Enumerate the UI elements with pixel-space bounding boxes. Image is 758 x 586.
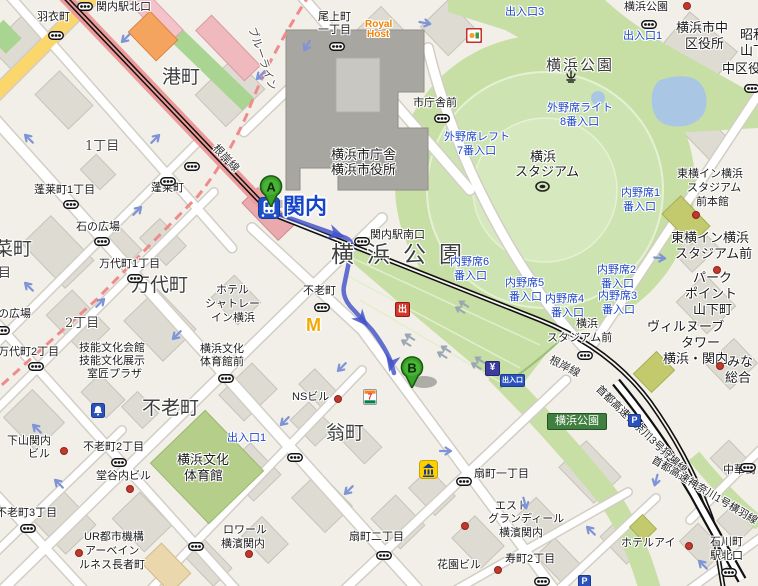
map-label: ヴィルヌーブ [647,320,724,333]
mcdonalds-icon: M [306,316,321,334]
map-label: 寿町2丁目 [505,554,555,565]
map-label: ビル [28,449,50,460]
map-label: 横浜公園 [546,58,614,73]
map-label: 内野席6 [450,257,489,268]
map-label: 中区役 [722,62,758,75]
map-label: 不老町2丁目 [83,442,144,453]
traffic-light-icon [28,358,44,376]
traffic-light-icon [434,110,450,128]
map-label: ホテルアイ [621,538,675,549]
map-label: 区役所 [685,37,724,50]
map-label: 根岸線 [210,143,241,175]
traffic-light-icon [740,459,756,477]
traffic-light-icon [188,538,204,556]
traffic-light-icon [354,233,370,251]
marker-a[interactable]: A [255,165,287,207]
poi-dot[interactable] [334,395,342,403]
fountain-icon [564,70,578,88]
traffic-light-icon [744,80,758,98]
map-label: 内野席1 [621,188,660,199]
oneway-arrow-icon [127,200,151,224]
map-label: パーク [693,271,732,284]
oneway-arrow-icon [580,517,604,541]
map-label: 外野席ライト [547,103,613,114]
map-label: 昭和 [740,28,758,41]
map-label: 石川町 [710,537,743,548]
oneway-arrow-icon [438,444,454,462]
traffic-light-icon [20,520,36,538]
map-label: 不老町 [303,286,336,297]
map-label: 8番入口 [560,117,599,128]
expressway-exit-yokohama-park-badge: 横浜公園 [547,413,607,430]
map-label: 山下町 [693,303,732,316]
map-label: 目 [0,267,11,280]
map-label: 技能文化会館 [79,343,145,354]
oneway-arrow-icon [512,494,534,514]
map-label: 2丁目 [65,317,99,330]
map-label: 不老町3丁目 [0,508,57,519]
map-label: 関内駅南口 [370,230,425,241]
traffic-light-icon [160,173,176,191]
map-label: 花園ビル [437,560,481,571]
lane-arrow-icon [431,335,457,362]
bell-icon [91,403,105,423]
traffic-light-icon [77,0,93,16]
traffic-light-icon [0,322,10,340]
map-label: イン横浜 [211,313,255,324]
map-label: アーベイン [85,546,139,557]
map-label: 不老町 [142,399,199,418]
oneway-arrow-icon [48,470,72,494]
map-label: 万代町2丁目 [0,347,59,358]
map-label: 市庁舎前 [413,98,457,109]
marker-b[interactable]: B [396,346,428,388]
poi-dot[interactable] [716,362,724,370]
map-label: UR都市機構 [84,532,144,543]
traffic-light-icon [534,573,550,586]
map-label: 出入口1 [227,433,266,444]
traffic-light-icon [127,270,143,288]
traffic-light-icon [376,547,392,565]
map-label: 内野席4 [545,294,584,305]
poi-dot[interactable] [245,550,253,558]
oneway-arrow-icon [293,34,317,57]
restaurant-icon [466,28,482,48]
map-label: スタジアム前 [547,333,612,344]
map-label: みな [727,355,753,368]
traffic-light-icon [329,38,345,56]
map-label: タワー [681,336,720,349]
marker-b-letter: B [407,361,416,376]
map-viewport[interactable]: 関内駅北口羽衣町尾上町一丁目RoyalHost港町1丁目蓬莱町1丁目蓬莱町石の広… [0,0,758,586]
map-label: 1丁目 [85,140,119,153]
oneway-arrow-icon [335,477,359,501]
traffic-light-icon [721,564,737,582]
map-label: 番入口 [623,202,656,213]
map-label: 内野席3 [598,291,637,302]
map-label: 横浜 [530,150,556,163]
map-label: 東横イン横浜 [677,169,743,180]
map-label: 蓬莱町1丁目 [34,185,95,196]
poi-dot[interactable] [75,549,83,557]
map-label: 横浜公園 [624,2,668,13]
map-label: 横浜市中 [676,21,728,34]
map-label: 羽衣町 [37,12,70,23]
oneway-arrow-icon [112,25,136,49]
traffic-light-icon [63,196,79,214]
map-label: 技能文化展示 [79,356,145,367]
map-label: 出入口3 [505,7,544,18]
traffic-light-icon [218,370,234,388]
map-label: 万代町1丁目 [99,259,160,270]
traffic-light-icon [641,16,657,34]
map-label: 7番入口 [457,146,496,157]
oneway-arrow-icon [163,322,187,346]
map-label: 体育館 [184,469,223,482]
traffic-light-icon [287,449,303,467]
map-label: 横浜市役所 [331,163,396,176]
oneway-arrow-icon [18,125,42,149]
map-label: 石の広場 [76,222,120,233]
atm-yen-icon: ¥ [485,361,500,376]
lane-arrow-icon [449,290,475,317]
map-label: 横濱関内 [221,539,265,550]
map-label: 一丁目 [318,25,351,36]
oneway-arrow-icon [18,273,42,297]
map-label: 前本館 [696,197,729,208]
map-label: ポイント [685,287,737,300]
map-label: 番入口 [602,305,635,316]
map-label: グランディール [488,514,564,525]
station-name-kannai[interactable]: 関内 [283,196,327,218]
map-label: 室匠プラザ [87,369,142,380]
map-label: 内野席2 [597,265,636,276]
map-label: 下山関内 [7,436,51,447]
map-label: ロワール [223,525,267,536]
poi-dot[interactable] [60,447,68,455]
map-label: 番入口 [509,292,542,303]
traffic-light-icon [184,158,200,176]
parking-icon: P [628,414,641,427]
oneway-arrow-icon [651,250,669,269]
map-label: ホテル [216,285,249,296]
oneway-arrow-icon [145,128,169,152]
map-label: 横浜文化 [177,453,229,466]
exit-sign-icon: 出 [395,302,410,317]
map-label: 関内駅北口 [96,2,151,13]
map-label: シャトレー [205,299,260,310]
poi-dot[interactable] [713,266,721,274]
map-label: 総合 [725,371,751,384]
map-label: 横濱関内 [499,528,543,539]
map-label: スタジアム [687,183,741,194]
map-label: 横浜市庁舎 [331,148,396,161]
poi-dot[interactable] [126,485,134,493]
map-label: 内野席5 [505,278,544,289]
map-label: 山下 [740,44,758,57]
map-label: 扇町二丁目 [349,532,404,543]
poi-dot[interactable] [683,2,691,10]
svg-text:7: 7 [368,393,373,402]
poi-dot[interactable] [461,522,469,530]
oneway-arrow-icon [90,292,114,316]
map-label: スタジアム [515,165,579,178]
oneway-arrow-icon [271,408,295,432]
map-label: 体育館前 [200,357,244,368]
seven-eleven-icon: 7 [363,389,377,410]
poi-dot[interactable] [692,211,700,219]
parking-icon: P [578,575,591,586]
map-label: NSビル [292,392,329,403]
map-label: 番入口 [601,279,634,290]
map-label: 尾上町 [318,12,351,23]
poi-dot[interactable] [685,542,693,550]
traffic-light-icon [577,347,593,365]
bank-icon [419,460,438,484]
map-label: 東横イン横浜 [671,231,749,244]
map-label: 横浜 [576,319,598,330]
map-label: 番入口 [454,271,487,282]
traffic-light-icon [48,27,64,45]
map-label: 扇町一丁目 [474,469,529,480]
stadium-icon [535,179,550,197]
expressway-entrance-icon: 出入口 [500,374,525,387]
oneway-arrow-icon [416,15,435,36]
poi-dot[interactable] [494,566,502,574]
map-label: 堂谷内ビル [96,471,151,482]
traffic-light-icon [111,454,127,472]
oneway-arrow-icon [643,470,665,490]
map-label: 翁町 [326,424,364,443]
map-label: Host [367,30,389,40]
map-label: 港町 [162,68,200,87]
traffic-light-icon [94,233,110,251]
map-label: 横浜文化 [200,344,244,355]
map-label: ルネス長者町 [79,560,145,571]
traffic-light-icon [456,473,472,491]
map-label: スタジアム前 [675,247,752,260]
oneway-arrow-icon [328,354,352,378]
map-label: 外野席レフト [444,132,510,143]
map-label: 首都高速神奈川3号狩場線 [594,384,689,476]
marker-a-letter: A [266,180,276,195]
map-label: 菜町 [0,240,32,259]
map-label: の広場 [0,309,31,320]
